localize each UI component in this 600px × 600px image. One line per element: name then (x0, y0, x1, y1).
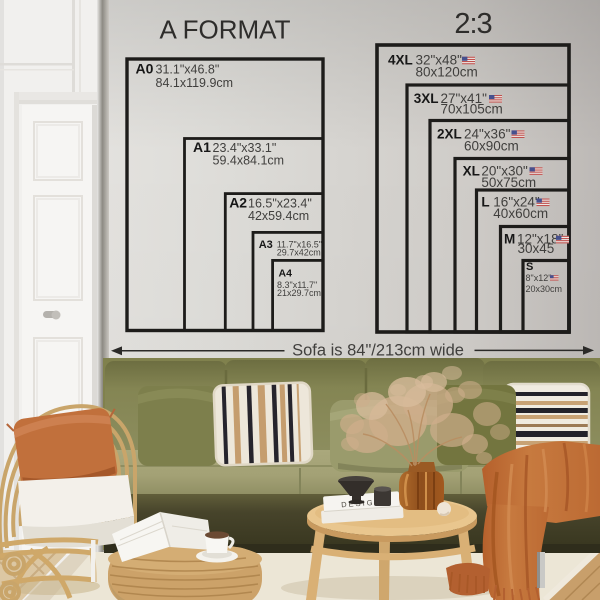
svg-text:XL: XL (463, 163, 480, 178)
svg-text:70x105cm: 70x105cm (441, 102, 503, 117)
svg-text:M: M (504, 232, 515, 247)
svg-text:A4: A4 (279, 268, 293, 280)
svg-text:2:3: 2:3 (454, 8, 491, 40)
svg-text:40x60cm: 40x60cm (493, 206, 548, 221)
svg-text:A2: A2 (229, 194, 247, 210)
svg-text:84.1x119.9cm: 84.1x119.9cm (156, 76, 234, 90)
svg-text:80x120cm: 80x120cm (416, 64, 478, 79)
svg-text:A FORMAT: A FORMAT (160, 15, 291, 45)
svg-text:L: L (481, 194, 489, 209)
svg-text:2XL: 2XL (437, 126, 462, 141)
svg-text:20x30cm: 20x30cm (526, 284, 563, 294)
svg-text:Sofa is 84"/213cm wide: Sofa is 84"/213cm wide (292, 341, 464, 359)
svg-text:A3: A3 (259, 239, 273, 251)
svg-text:30x45: 30x45 (518, 241, 555, 256)
svg-text:4XL: 4XL (388, 53, 413, 68)
svg-text:8"x12": 8"x12" (526, 273, 552, 283)
svg-text:29.7x42cm: 29.7x42cm (277, 248, 321, 258)
svg-text:A0: A0 (136, 60, 154, 76)
svg-text:3XL: 3XL (414, 91, 439, 106)
svg-text:60x90cm: 60x90cm (464, 139, 519, 154)
svg-text:59.4x84.1cm: 59.4x84.1cm (213, 154, 285, 168)
svg-text:S: S (526, 261, 533, 273)
svg-text:31.1"x46.8": 31.1"x46.8" (156, 62, 220, 76)
svg-text:21x29.7cm: 21x29.7cm (277, 288, 321, 298)
svg-text:42x59.4cm: 42x59.4cm (248, 209, 309, 223)
svg-text:50x75cm: 50x75cm (481, 175, 536, 190)
svg-text:A1: A1 (193, 139, 211, 155)
